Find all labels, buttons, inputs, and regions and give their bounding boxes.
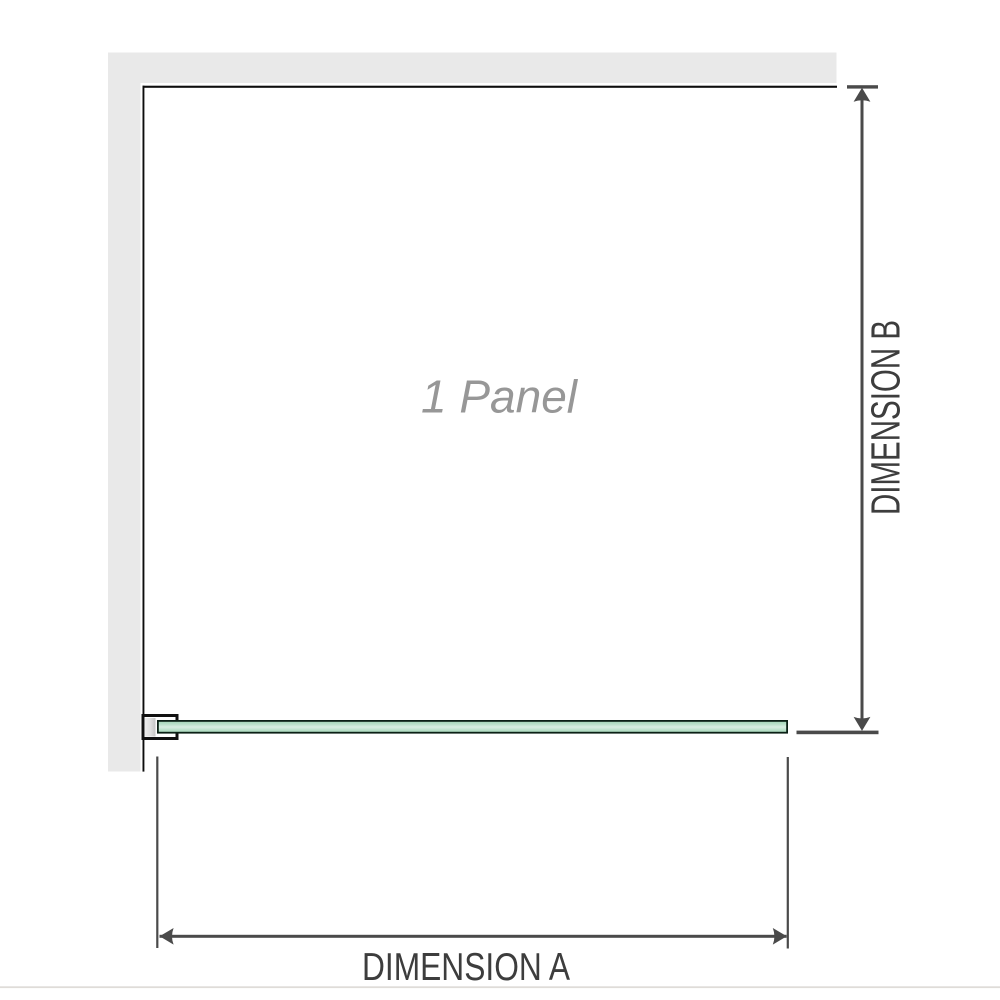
- svg-text:DIMENSION B: DIMENSION B: [863, 320, 909, 515]
- svg-text:1 Panel: 1 Panel: [421, 371, 579, 423]
- svg-text:DIMENSION A: DIMENSION A: [362, 946, 570, 989]
